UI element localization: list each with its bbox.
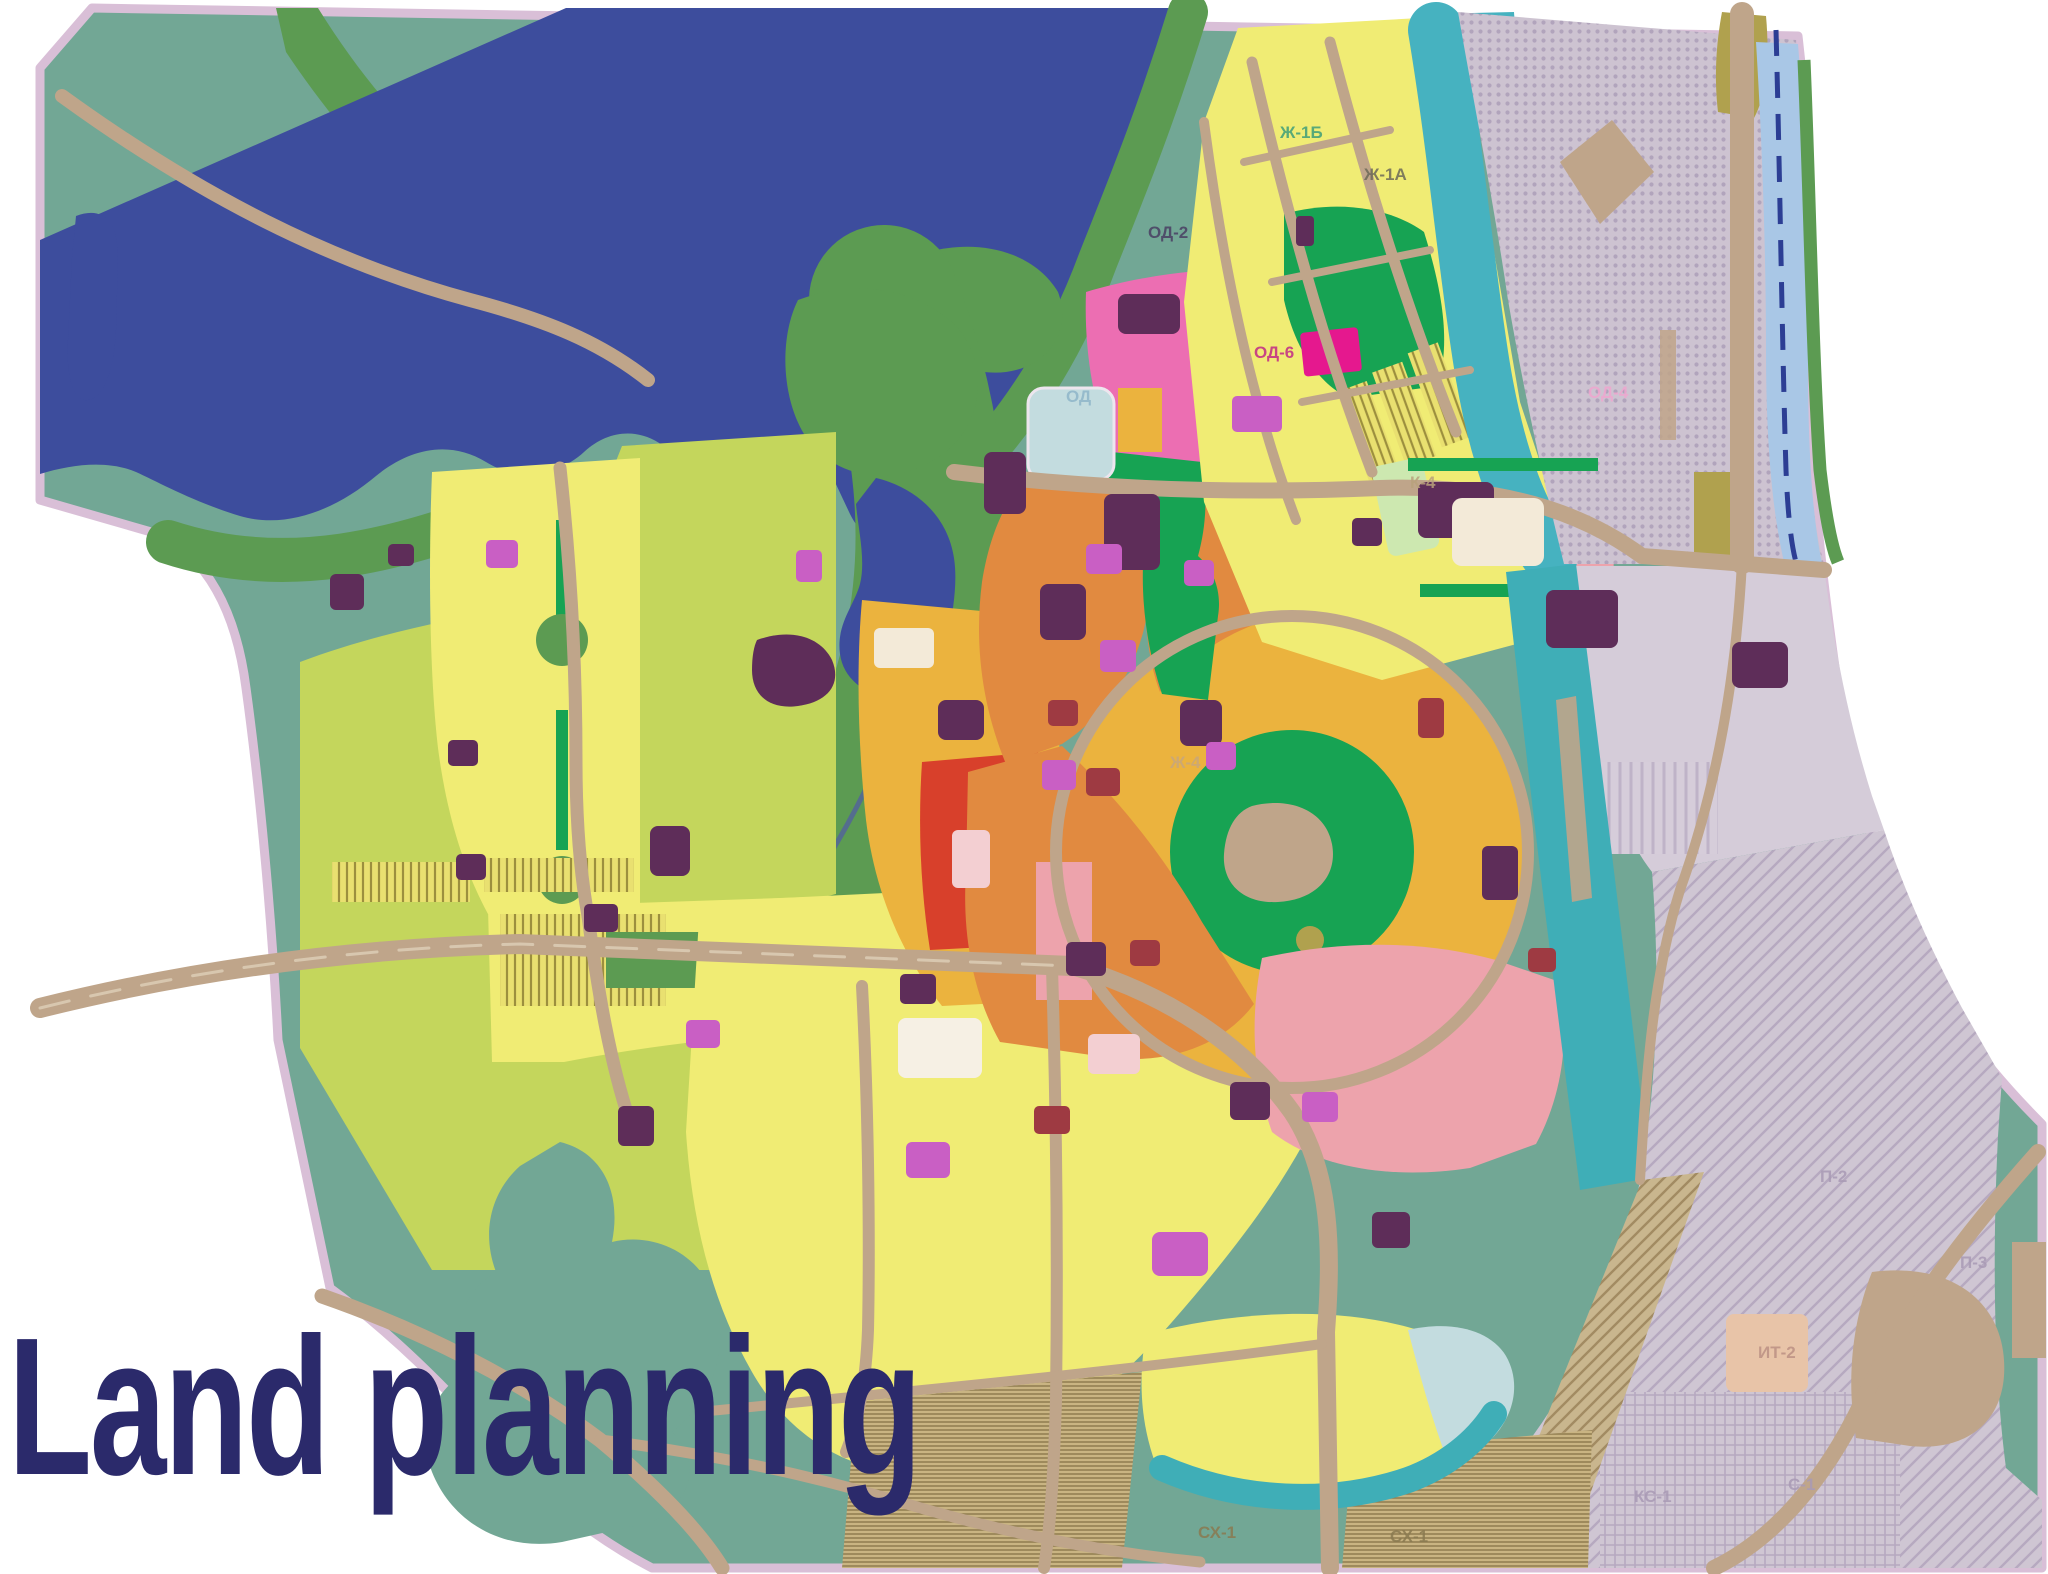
parcel (1482, 846, 1518, 900)
parcel (486, 540, 518, 568)
parcel (1528, 948, 1556, 972)
parcel (1088, 1034, 1140, 1074)
zone-label: КС-1 (1634, 1487, 1672, 1506)
ring-park-building (1224, 803, 1333, 902)
parcel (1546, 590, 1618, 648)
zone-label: СХ-1 (1198, 1523, 1236, 1542)
olive-parcel (1694, 472, 1736, 564)
zone-label: С-1 (1788, 1475, 1815, 1494)
parcel (618, 1106, 654, 1146)
zone-label: ОД (1066, 387, 1091, 406)
parcel (1372, 1212, 1410, 1248)
parcel (984, 452, 1026, 514)
parcel (1100, 640, 1136, 672)
parcel (900, 974, 936, 1004)
parcel (1732, 642, 1788, 688)
map-title: Land planning (8, 1297, 920, 1516)
parcel (1066, 942, 1106, 976)
map-layers: ОДОД-2ОД-6ОД-4Ж-1БЖ-1АК-4Ж-4СХ-1СХ-1П-2П… (8, 8, 2046, 1568)
parcel (388, 544, 414, 566)
land-planning-map-page: ОДОД-2ОД-6ОД-4Ж-1БЖ-1АК-4Ж-4СХ-1СХ-1П-2П… (0, 0, 2048, 1574)
parcel (456, 854, 486, 880)
parcel (1086, 768, 1120, 796)
parcel (1206, 742, 1236, 770)
garden-strip (332, 862, 470, 902)
parcel (952, 830, 990, 888)
parcel (906, 1142, 950, 1178)
parcel (1118, 294, 1180, 334)
parcel (448, 740, 478, 766)
zone-label: СХ-1 (1390, 1527, 1428, 1546)
parcel (1048, 700, 1078, 726)
zone-label: ИТ-2 (1758, 1343, 1796, 1362)
zone-label: ОД-4 (1588, 383, 1629, 402)
parcel (796, 550, 822, 582)
garden-strip (484, 858, 634, 892)
parcel (1302, 1092, 1338, 1122)
parcel (1418, 698, 1444, 738)
zone-label: П-2 (1820, 1167, 1847, 1186)
parcel (650, 826, 690, 876)
parcel (1452, 498, 1544, 566)
parcel (1230, 1082, 1270, 1120)
tan-parcel (2012, 1242, 2046, 1358)
parcel (686, 1020, 720, 1048)
parcel (874, 628, 934, 668)
parcel (1152, 1232, 1208, 1276)
parcel (584, 904, 618, 932)
land-planning-map: ОДОД-2ОД-6ОД-4Ж-1БЖ-1АК-4Ж-4СХ-1СХ-1П-2П… (0, 0, 2048, 1574)
zone-label: Ж-1А (1363, 165, 1407, 184)
tan-parcel (1660, 330, 1676, 440)
parcel (1352, 518, 1382, 546)
zone-label: Ж-1Б (1279, 123, 1323, 142)
parcel (1040, 584, 1086, 640)
residential-left-block (430, 458, 640, 914)
parcel (1034, 1106, 1070, 1134)
zone-label: ОД-6 (1254, 343, 1294, 362)
parcel (1042, 760, 1076, 790)
parcel (1184, 560, 1214, 586)
zone-label: Ж-4 (1169, 753, 1201, 772)
parcel (898, 1018, 982, 1078)
gold-parcel (1118, 388, 1162, 452)
parcel (938, 700, 984, 740)
zone-label: К-4 (1410, 473, 1436, 492)
parcel (330, 574, 364, 610)
zone-label: П-3 (1960, 1253, 1987, 1272)
parcel (1180, 700, 1222, 746)
green-strip (1408, 458, 1598, 471)
parcel (1086, 544, 1122, 574)
parcel (1130, 940, 1160, 966)
parcel (1232, 396, 1282, 432)
parcel (1296, 216, 1314, 246)
zone-label: ОД-2 (1148, 223, 1188, 242)
green-strip (556, 710, 568, 850)
